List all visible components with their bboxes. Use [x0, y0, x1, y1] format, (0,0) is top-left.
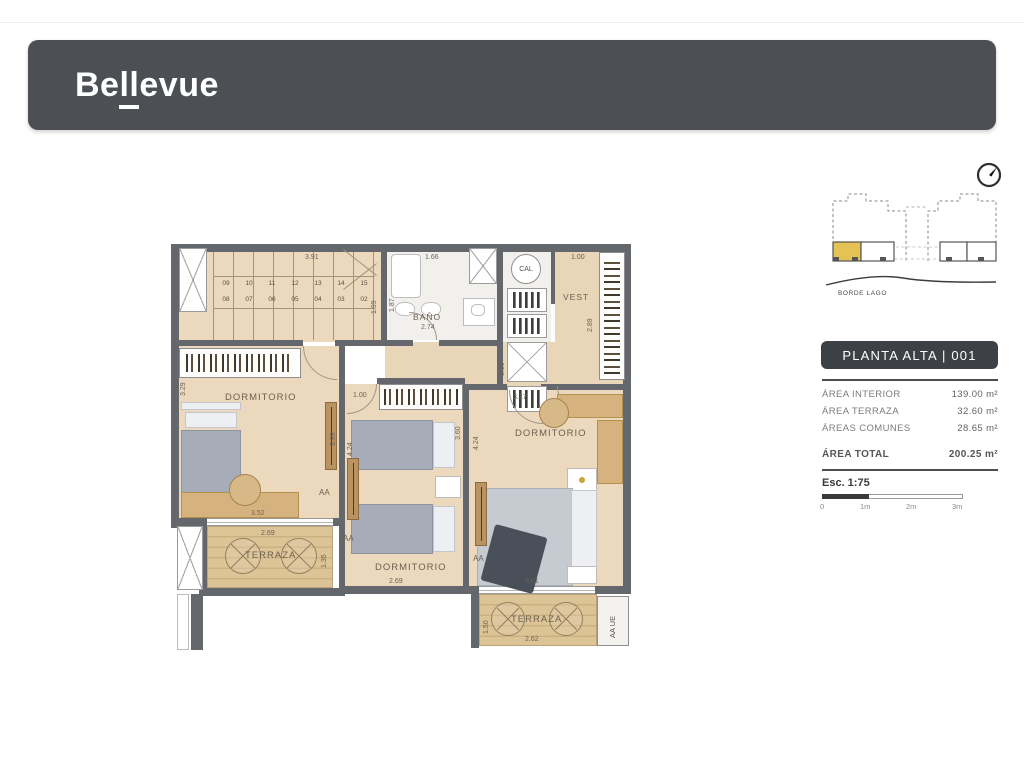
dim-3-29: 3.29 [180, 382, 187, 396]
bedroom1-closet [179, 348, 301, 378]
dim-3-60: 3.60 [455, 426, 462, 440]
logo-text: Be [75, 66, 119, 104]
page-top-rule [0, 22, 1024, 23]
room-label-vest: VEST [563, 292, 589, 302]
dim-1-87: 1.87 [389, 298, 396, 312]
bed2b-pillow [433, 506, 455, 552]
wall-under-stairs-b [335, 340, 413, 346]
dim-2-69-terr: 2.69 [261, 530, 275, 537]
wall-top [171, 244, 631, 252]
dim-3-17: 3.17 [513, 394, 527, 401]
bedroom3-chair [539, 398, 569, 428]
wall-tail [191, 594, 203, 650]
shower [391, 254, 421, 298]
room-label-terrace2: TERRAZA [511, 614, 562, 625]
utility-shelf-1 [507, 288, 547, 312]
wall-bed1-bed2 [339, 340, 345, 588]
area-value: 32.60 m² [957, 406, 998, 417]
dim-1-00-vest: 1.00 [571, 254, 585, 261]
plan-badge: PLANTA ALTA | 001 [821, 341, 998, 369]
stair-num: 10 [238, 280, 260, 287]
shaft-bottom-left [177, 526, 203, 590]
stair-num: 08 [215, 296, 237, 303]
dim-4-24-b: 4.24 [473, 436, 480, 450]
wall-terrace1-bottom [199, 588, 345, 596]
stair-numbers-top: 09101112131415 [215, 280, 375, 287]
dim-3-91: 3.91 [305, 254, 319, 261]
area-total-label: ÁREA TOTAL [822, 449, 889, 460]
area-row-interior: ÁREA INTERIOR 139.00 m² [822, 389, 998, 400]
stair-num: 12 [284, 280, 306, 287]
bedroom2-nightstand [435, 476, 461, 498]
area-value: 139.00 m² [952, 389, 998, 400]
bed1-pillow [185, 412, 237, 428]
wall-bed2-bed3 [463, 384, 469, 588]
room-label-bedroom3: DORMITORIO [515, 428, 587, 439]
dim-3-01: 3.01 [525, 578, 539, 585]
dim-1-99: 1.99 [371, 300, 378, 314]
ledge-outline [177, 594, 189, 650]
ac-label-1: AA [319, 488, 330, 497]
ac-label-3: AA [473, 554, 484, 563]
shaft-top-left [179, 248, 207, 312]
wall-stairs-bath [381, 244, 387, 342]
room-label-bedroom2: DORMITORIO [375, 562, 447, 573]
stair-num: 13 [307, 280, 329, 287]
stair-landing-line2 [213, 308, 375, 309]
dim-4-24-a: 4.24 [347, 442, 354, 456]
dim-0-90: 0.90 [499, 362, 506, 376]
scale-bar-light [869, 494, 963, 499]
terrace1-window [207, 518, 333, 526]
bedroom3-wardrobe [597, 420, 623, 484]
header-bar: Bellevue [28, 40, 996, 130]
wall-terrace2-left [471, 594, 479, 648]
wall-bed1-bottom-b [333, 518, 345, 526]
room-label-terrace1: TERRAZA [245, 550, 296, 561]
stair-num: 11 [261, 280, 283, 287]
cal-label: CAL [519, 266, 533, 273]
stair-num: 15 [353, 280, 375, 287]
vest-closet [599, 252, 625, 380]
dim-2-89: 2.89 [587, 318, 594, 332]
shaft-utility [507, 342, 547, 382]
sink [471, 304, 485, 316]
ac-unit-3 [475, 482, 487, 546]
wall-vest-bottom [587, 384, 627, 388]
scale-tick-0: 0 [820, 502, 824, 511]
scale-label: Esc. 1:75 [822, 477, 870, 489]
stair-num: 06 [261, 296, 283, 303]
divider-top [822, 379, 998, 381]
room-label-bedroom1: DORMITORIO [225, 392, 297, 403]
stair-num: 09 [215, 280, 237, 287]
brand-logo: Bellevue [75, 66, 219, 105]
area-label: ÁREAS COMUNES [822, 423, 911, 434]
bed2b-blanket [351, 504, 433, 554]
dim-2-74: 2.74 [421, 324, 435, 331]
area-row-terraza: ÁREA TERRAZA 32.60 m² [822, 406, 998, 417]
dim-3-99: 3.99 [330, 432, 337, 446]
room-label-bathroom: BAÑO [413, 312, 441, 322]
divider-bottom [822, 469, 998, 471]
wall-under-bath [439, 340, 499, 346]
bed1-headboard [181, 402, 241, 410]
nightstand-lamp [579, 477, 585, 483]
bedroom3-bench [567, 566, 597, 584]
utility-shelf-2 [507, 314, 547, 338]
brochure-page: Bellevue [0, 0, 1024, 768]
bedroom1-chair [229, 474, 261, 506]
wall-bed3-top-a [469, 384, 507, 390]
stair-num: 07 [238, 296, 260, 303]
bed2a-pillow [433, 422, 455, 468]
stair-landing-line1 [213, 276, 375, 277]
shaft-bath-corner [469, 248, 497, 284]
scale-tick-1m: 1m [860, 502, 870, 511]
scale-tick-2m: 2m [906, 502, 916, 511]
bed2a-blanket [351, 420, 433, 470]
terrace2-window [479, 586, 595, 594]
dim-1-00-dorm: 1.00 [353, 392, 367, 399]
stair-num: 04 [307, 296, 329, 303]
scale-tick-3m: 3m [952, 502, 962, 511]
logo-underlined-ll: ll [119, 66, 139, 109]
cal-heater: CAL [511, 254, 541, 284]
dim-2-62: 2.62 [525, 636, 539, 643]
floor-plan: 09101112131415 08070605040302 CAL [163, 236, 643, 662]
logo-text: evue [139, 66, 219, 104]
area-label: ÁREA INTERIOR [822, 389, 901, 400]
bedroom2-closet [379, 384, 463, 410]
ac-label-2: AA [343, 534, 354, 543]
building-elevation [818, 185, 1004, 305]
area-value: 28.65 m² [957, 423, 998, 434]
plan-badge-text: PLANTA ALTA | 001 [842, 348, 976, 363]
stair-num: 14 [330, 280, 352, 287]
scale-bar [822, 494, 963, 499]
borde-lago-label: BORDE LAGO [838, 290, 887, 297]
area-total-row: ÁREA TOTAL 200.25 m² [822, 449, 998, 460]
wall-bottom-b [595, 586, 631, 594]
stair-num: 03 [330, 296, 352, 303]
ac-outdoor-label: AA UE [608, 616, 617, 638]
ac-unit-2 [347, 458, 359, 520]
dim-3-52: 3.52 [251, 510, 265, 517]
area-table: ÁREA INTERIOR 139.00 m² ÁREA TERRAZA 32.… [822, 389, 998, 440]
area-row-comunes: ÁREAS COMUNES 28.65 m² [822, 423, 998, 434]
wall-under-stairs-a [171, 340, 303, 346]
dim-1-66: 1.66 [425, 254, 439, 261]
wall-utility-vest [551, 244, 555, 304]
dim-2-69-dorm: 2.69 [389, 578, 403, 585]
area-label: ÁREA TERRAZA [822, 406, 899, 417]
stair-numbers-bottom: 08070605040302 [215, 296, 375, 303]
wall-bottom-a [339, 586, 479, 594]
wall-left [171, 244, 179, 528]
scale-bar-dark [822, 494, 869, 499]
dim-1-50: 1.50 [483, 620, 490, 634]
area-total-value: 200.25 m² [949, 449, 998, 460]
dim-1-35: 1.35 [321, 554, 328, 568]
stair-num: 05 [284, 296, 306, 303]
